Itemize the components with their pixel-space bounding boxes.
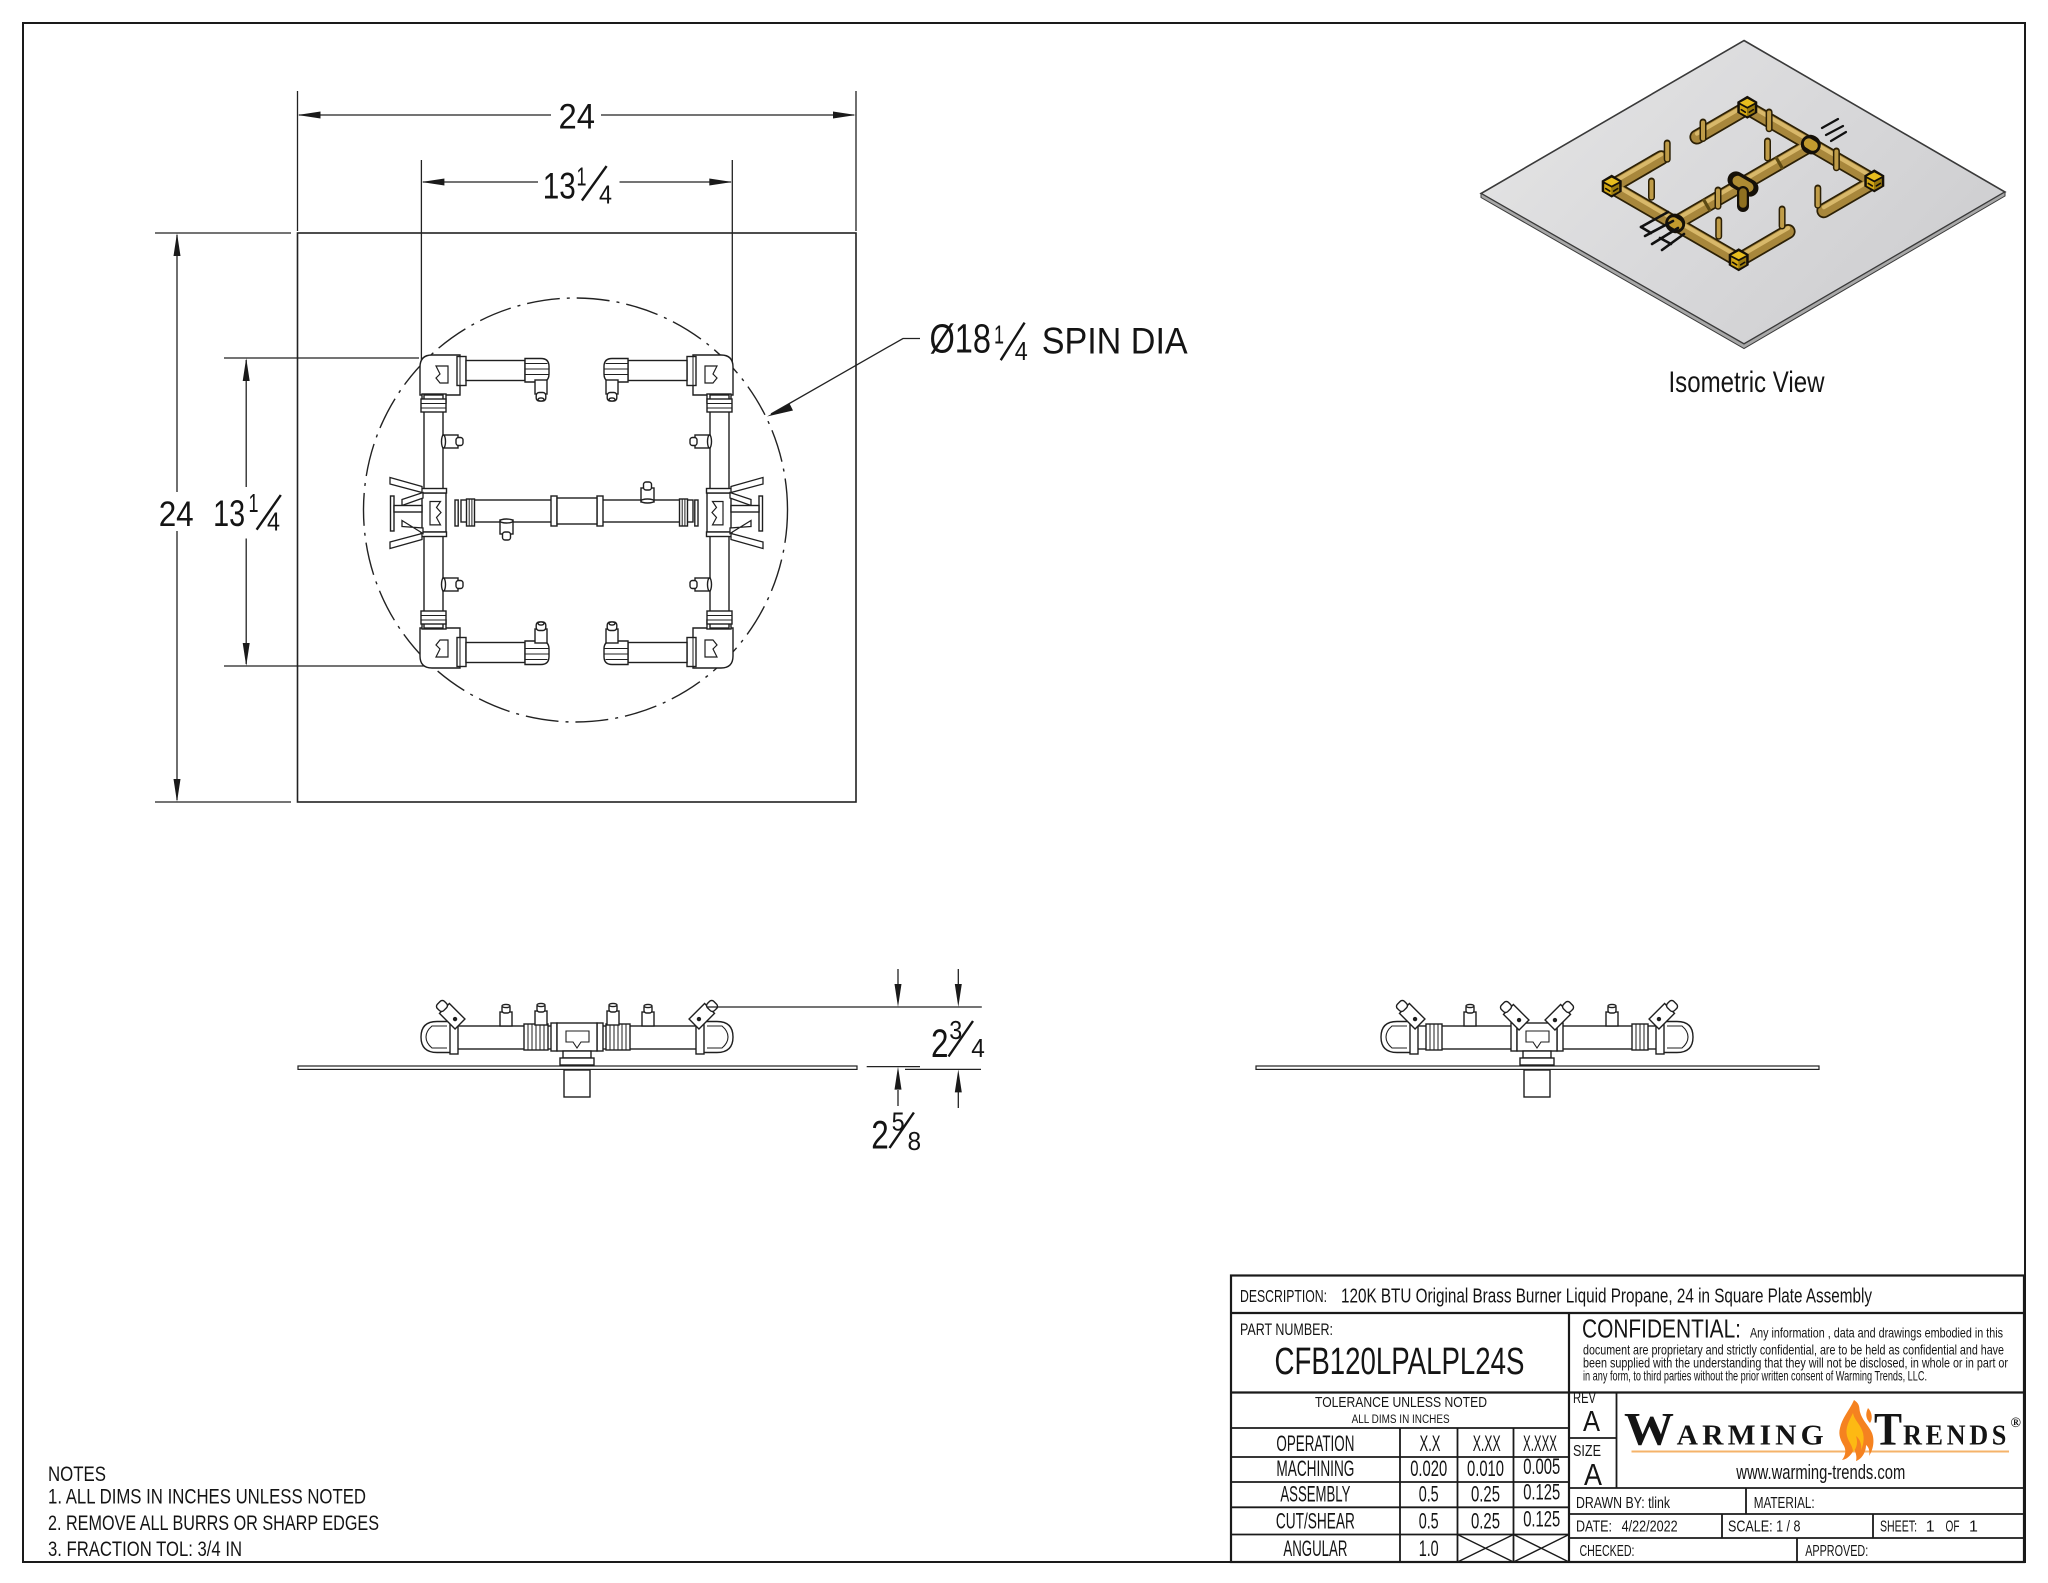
svg-text:DESCRIPTION:: DESCRIPTION: xyxy=(1240,1286,1327,1306)
svg-text:®: ® xyxy=(2011,1416,2022,1431)
svg-text:NOTES: NOTES xyxy=(48,1463,106,1486)
svg-text:Isometric View: Isometric View xyxy=(1669,366,1825,399)
svg-text:24: 24 xyxy=(559,96,596,136)
svg-text:0.005: 0.005 xyxy=(1523,1454,1560,1479)
svg-text:1: 1 xyxy=(249,488,259,518)
svg-text:DATE:: DATE: xyxy=(1576,1519,1612,1536)
svg-text:2: 2 xyxy=(871,1114,889,1158)
svg-text:13: 13 xyxy=(543,165,576,206)
svg-text:DRAWN BY: tlink: DRAWN BY: tlink xyxy=(1576,1495,1671,1512)
svg-text:TOLERANCE UNLESS NOTED: TOLERANCE UNLESS NOTED xyxy=(1315,1394,1487,1411)
svg-text:ANGULAR: ANGULAR xyxy=(1283,1536,1347,1561)
svg-text:in any form, to third parties: in any form, to third parties without th… xyxy=(1583,1367,1927,1383)
svg-text:ARMING: ARMING xyxy=(1677,1419,1828,1451)
svg-text:CONFIDENTIAL:: CONFIDENTIAL: xyxy=(1582,1314,1741,1344)
svg-text:13: 13 xyxy=(213,493,245,534)
svg-text:4: 4 xyxy=(599,180,612,210)
svg-text:T: T xyxy=(1874,1403,1902,1455)
svg-text:ALL DIMS IN INCHES: ALL DIMS IN INCHES xyxy=(1352,1414,1450,1426)
svg-text:0.25: 0.25 xyxy=(1471,1482,1500,1507)
svg-text:0.125: 0.125 xyxy=(1523,1507,1560,1532)
svg-text:OPERATION: OPERATION xyxy=(1276,1431,1354,1456)
svg-text:www.warming-trends.com: www.warming-trends.com xyxy=(1736,1462,1906,1484)
svg-text:ASSEMBLY: ASSEMBLY xyxy=(1280,1482,1350,1507)
svg-text:1: 1 xyxy=(1926,1519,1935,1536)
svg-text:8: 8 xyxy=(908,1126,922,1156)
svg-text:PART NUMBER:: PART NUMBER: xyxy=(1240,1320,1333,1339)
svg-text:0.5: 0.5 xyxy=(1419,1482,1439,1507)
svg-text:APPROVED:: APPROVED: xyxy=(1805,1543,1868,1560)
svg-text:A: A xyxy=(1583,1406,1601,1438)
svg-text:1. ALL DIMS IN INCHES UNLESS N: 1. ALL DIMS IN INCHES UNLESS NOTED xyxy=(48,1486,366,1509)
svg-text:4: 4 xyxy=(267,507,280,537)
svg-text:OF: OF xyxy=(1946,1519,1960,1536)
svg-text:0.5: 0.5 xyxy=(1419,1509,1439,1534)
svg-text:SPIN DIA: SPIN DIA xyxy=(1042,320,1188,361)
svg-text:4: 4 xyxy=(1015,336,1028,366)
svg-text:120K BTU Original Brass Burner: 120K BTU Original Brass Burner Liquid Pr… xyxy=(1341,1286,1873,1308)
svg-text:CUT/SHEAR: CUT/SHEAR xyxy=(1276,1509,1355,1534)
svg-text:MATERIAL:: MATERIAL: xyxy=(1754,1495,1815,1512)
svg-text:1: 1 xyxy=(577,161,587,191)
svg-text:W: W xyxy=(1624,1403,1674,1455)
svg-text:3. FRACTION TOL: 3/4 IN: 3. FRACTION TOL: 3/4 IN xyxy=(48,1538,242,1561)
svg-text:5: 5 xyxy=(892,1106,905,1136)
svg-text:SCALE: 1 / 8: SCALE: 1 / 8 xyxy=(1728,1519,1801,1536)
svg-text:4/22/2022: 4/22/2022 xyxy=(1622,1519,1678,1536)
svg-text:0.25: 0.25 xyxy=(1471,1509,1500,1534)
svg-text:2. REMOVE ALL BURRS OR SHARP E: 2. REMOVE ALL BURRS OR SHARP EDGES xyxy=(48,1512,379,1535)
svg-text:X.XXX: X.XXX xyxy=(1523,1431,1557,1456)
svg-text:X.XX: X.XX xyxy=(1473,1431,1501,1456)
svg-text:SHEET:: SHEET: xyxy=(1880,1519,1917,1536)
svg-text:A: A xyxy=(1584,1457,1602,1492)
svg-text:0.010: 0.010 xyxy=(1467,1456,1504,1481)
svg-text:1.0: 1.0 xyxy=(1419,1536,1439,1561)
svg-text:CHECKED:: CHECKED: xyxy=(1580,1543,1635,1560)
svg-text:RENDS: RENDS xyxy=(1903,1419,2010,1451)
svg-text:1: 1 xyxy=(1969,1519,1978,1536)
svg-text:Any information , data and dra: Any information , data and drawings embo… xyxy=(1750,1325,2003,1341)
svg-text:0.125: 0.125 xyxy=(1523,1480,1560,1505)
svg-text:MACHINING: MACHINING xyxy=(1276,1456,1354,1481)
svg-text:CFB120LPALPL24S: CFB120LPALPL24S xyxy=(1275,1341,1525,1383)
svg-text:0.020: 0.020 xyxy=(1410,1456,1447,1481)
svg-text:Ø18: Ø18 xyxy=(930,316,992,362)
svg-text:X.X: X.X xyxy=(1420,1431,1441,1456)
svg-text:24: 24 xyxy=(159,494,194,534)
svg-text:REV: REV xyxy=(1573,1390,1596,1407)
svg-text:1: 1 xyxy=(994,320,1004,350)
svg-text:4: 4 xyxy=(971,1033,985,1063)
svg-text:2: 2 xyxy=(931,1022,949,1066)
